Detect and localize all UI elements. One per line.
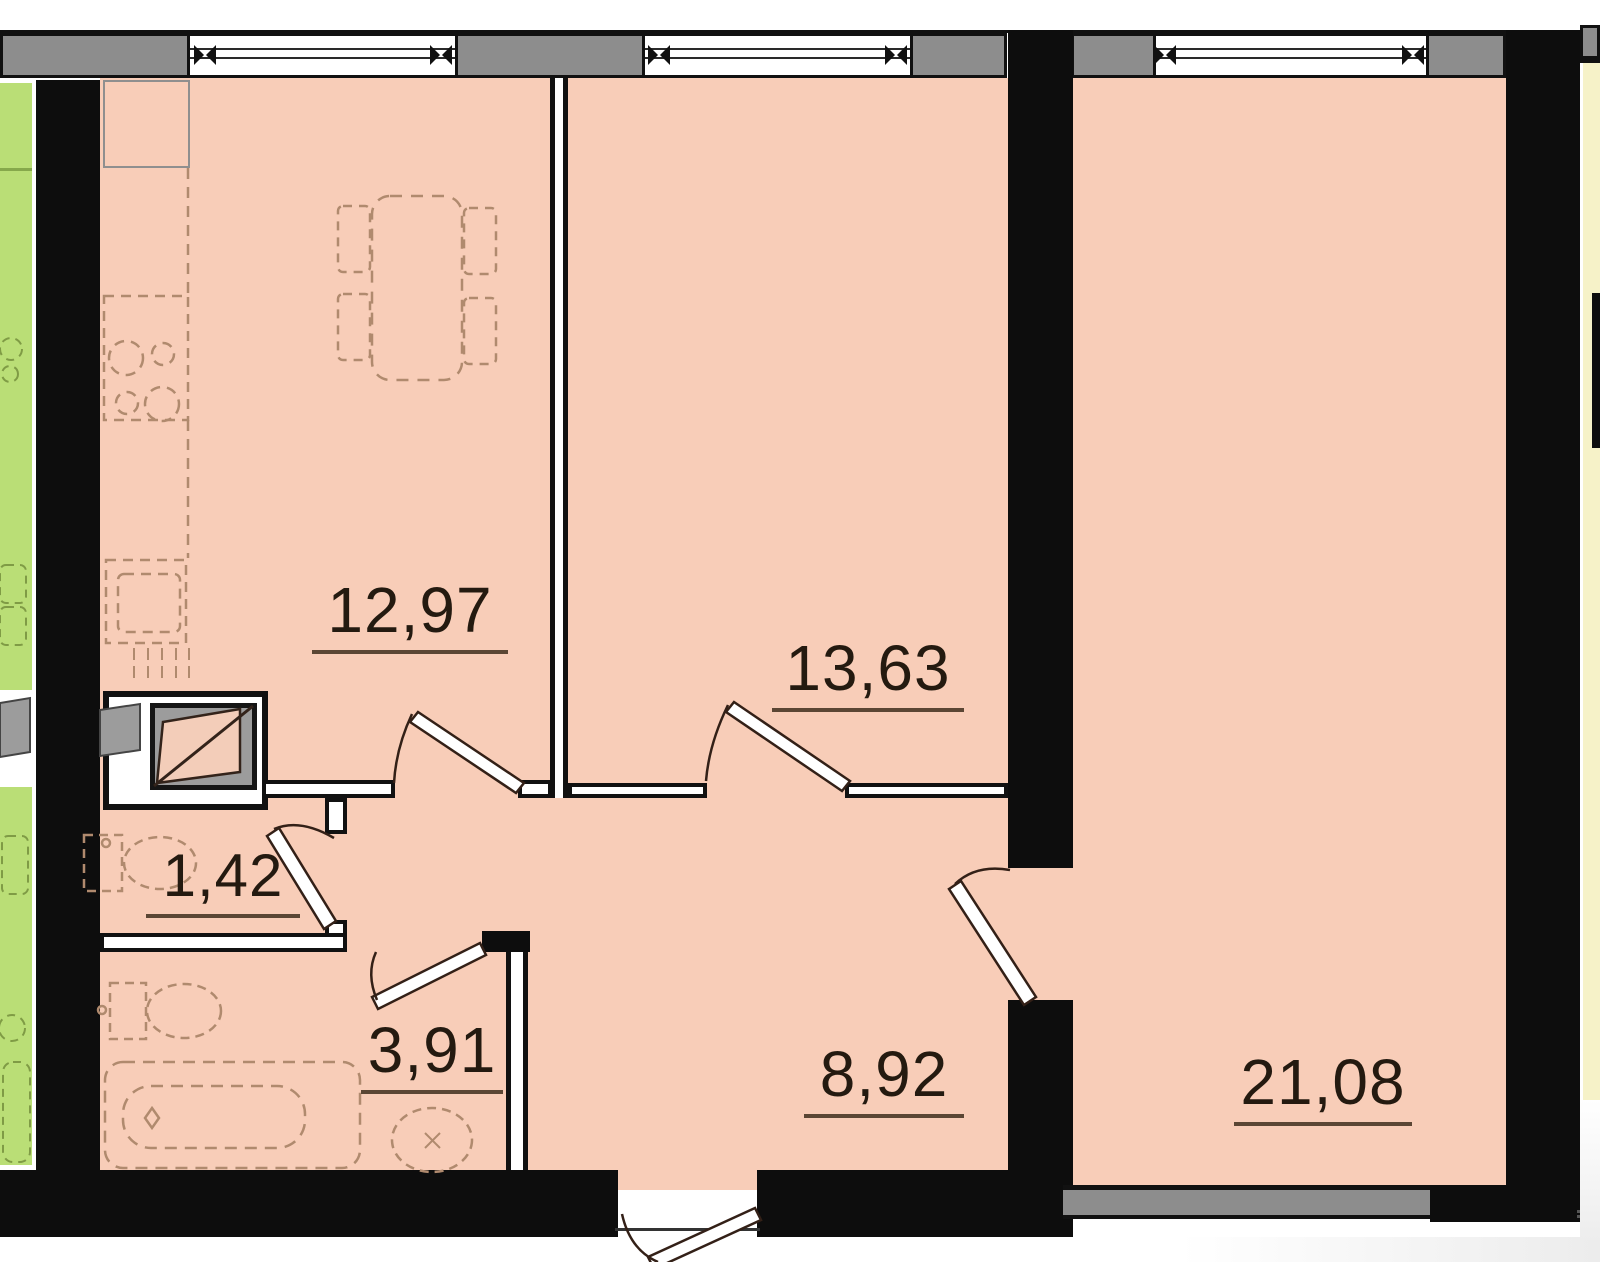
vent-grille-icon	[134, 648, 189, 678]
kitchen-sink-icon	[106, 560, 186, 643]
page-shading	[1580, 1100, 1600, 1240]
stove-icon	[104, 296, 188, 421]
entrance-door-icon	[622, 1208, 761, 1262]
window-mullion-icon	[194, 45, 1424, 65]
toilet-icon	[98, 983, 221, 1039]
room-area-label-bedroom: 13,63	[772, 636, 964, 712]
chair-icon	[338, 206, 496, 364]
floor-plan: 12,97 13,63 1,42 3,91 8,92 21,08	[0, 0, 1600, 1262]
ventilation-shaft-icon	[154, 706, 253, 786]
room-area-label-bathroom: 3,91	[361, 1018, 503, 1094]
washbasin-icon	[392, 1108, 472, 1172]
room-area-label-water-closet: 1,42	[146, 846, 300, 918]
door-swing-icon	[267, 702, 1036, 1009]
dining-table-icon	[372, 196, 462, 380]
bathtub-icon	[105, 1062, 360, 1168]
balcony-glazing-icon	[0, 698, 140, 757]
kitchen-counter-icon	[104, 81, 189, 558]
room-area-label-living-room: 21,08	[1234, 1050, 1412, 1126]
room-area-label-hallway: 8,92	[804, 1042, 964, 1118]
room-area-label-kitchen: 12,97	[312, 578, 508, 654]
page-shading	[900, 1237, 1600, 1262]
